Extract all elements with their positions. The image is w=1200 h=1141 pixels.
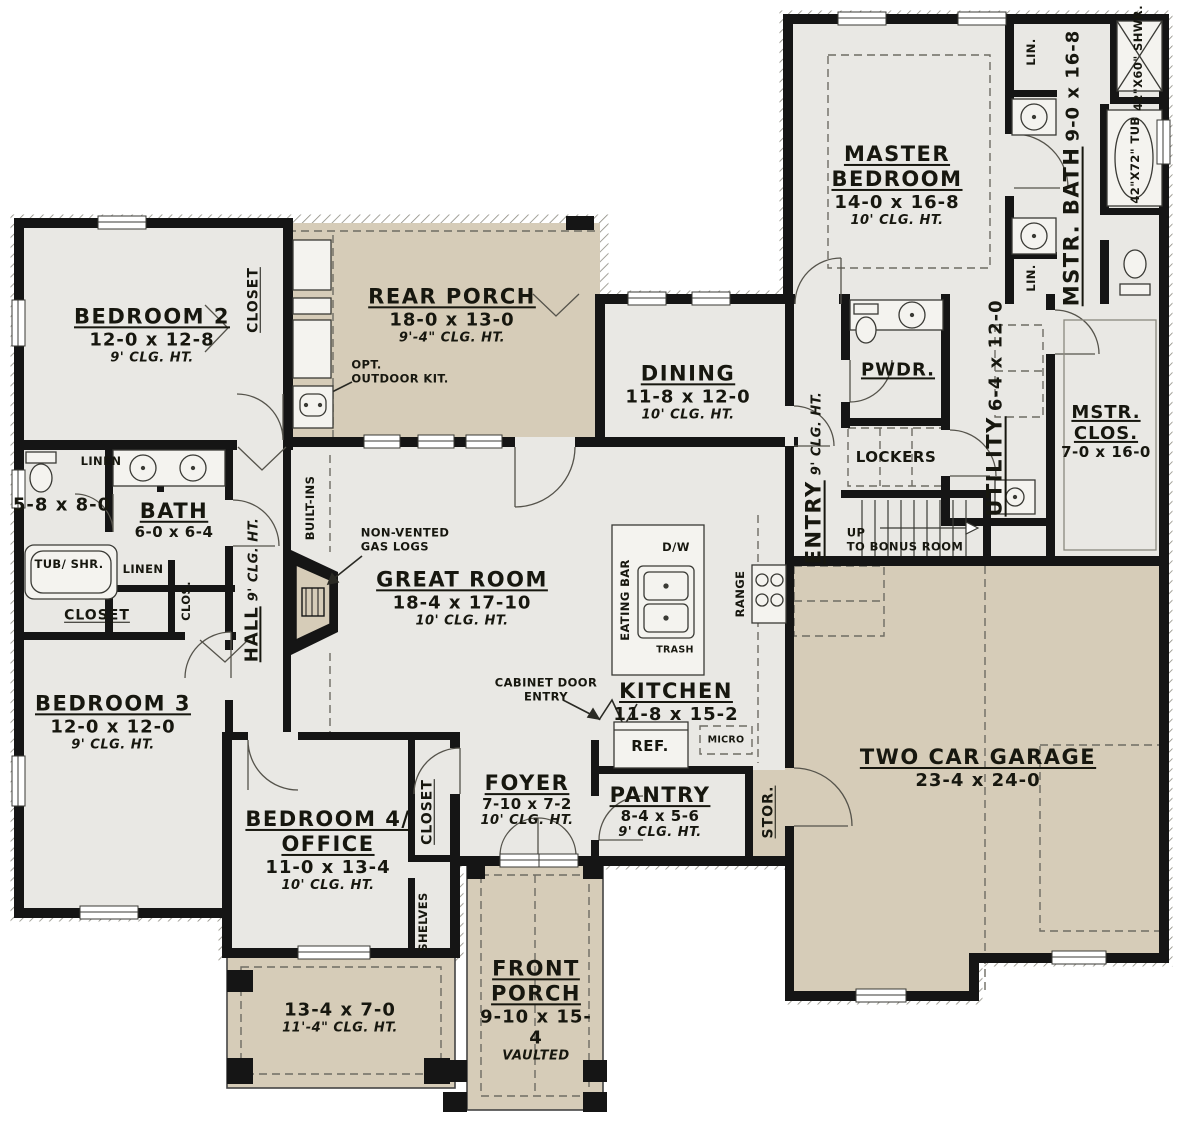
tub-size-label: 42"X72" TUB	[1129, 116, 1143, 203]
floor-plan-drawing	[0, 0, 1200, 1141]
trash-label: TRASH	[656, 644, 693, 655]
micro-label: MICRO	[708, 734, 745, 745]
room-label-front-porch: FRONT PORCH 9-10 x 15-4 VAULTED	[476, 956, 596, 1063]
room-label-pantry: PANTRY 8-4 x 5-6 9' CLG. HT.	[610, 783, 711, 841]
room-label-bedroom3: BEDROOM 3 12-0 x 12-0 9' CLG. HT.	[35, 691, 191, 752]
built-ins-label: BUILT-INS	[304, 476, 318, 541]
linen-label-top: LINEN	[81, 455, 122, 469]
room-label-kitchen: KITCHEN 11-8 x 15-2	[613, 679, 738, 725]
stairs-label: UP TO BONUS ROOM	[847, 526, 963, 553]
closet-label-bedroom3: CLOSET	[64, 608, 130, 625]
room-label-dining: DINING 11-8 x 12-0 10' CLG. HT.	[625, 361, 750, 422]
opt-outdoor-kit-label: OPT. OUTDOOR KIT.	[351, 358, 448, 385]
room-label-rear-porch: REAR PORCH 18-0 x 13-0 9'-4" CLG. HT.	[368, 284, 536, 345]
room-label-mstr-bath: MSTR. BATH 9-0 x 16-8	[1060, 30, 1085, 307]
eating-bar-label: EATING BAR	[619, 559, 633, 641]
tub-shr-label: TUB/ SHR.	[34, 558, 103, 572]
dishwasher-label: D/W	[662, 541, 690, 555]
room-label-pwdr: PWDR.	[861, 359, 935, 380]
room-label-garage: TWO CAR GARAGE 23-4 x 24-0	[860, 745, 1096, 791]
floor-plan: MASTER BEDROOM 14-0 x 16-8 10' CLG. HT. …	[0, 0, 1200, 1141]
room-label-bedroom4: BEDROOM 4/ OFFICE 11-0 x 13-4 10' CLG. H…	[233, 807, 423, 893]
shelves-label: SHELVES	[417, 892, 431, 951]
room-label-hall: HALL 9' CLG. HT.	[241, 518, 262, 663]
ref-label: REF.	[631, 738, 669, 756]
room-label-entry: ENTRY 9' CLG. HT.	[802, 392, 827, 565]
room-label-foyer: FOYER 7-10 x 7-2 10' CLG. HT.	[480, 771, 573, 829]
room-label-bedroom2: BEDROOM 2 12-0 x 12-8 9' CLG. HT.	[74, 304, 230, 365]
range-label: RANGE	[734, 571, 748, 618]
linen-label-bottom: LINEN	[123, 563, 164, 577]
room-label-great-room: GREAT ROOM 18-4 x 17-10 10' CLG. HT.	[376, 567, 548, 628]
side-porch-label: 13-4 x 7-0 11'-4" CLG. HT.	[282, 1000, 398, 1037]
bath-wc-dims-label: 5-8 x 8-0	[13, 494, 111, 515]
linen-closet-label-bottom: LIN.	[1025, 264, 1039, 291]
room-label-master-bedroom: MASTER BEDROOM 14-0 x 16-8 10' CLG. HT.	[797, 142, 997, 228]
lockers-label: LOCKERS	[856, 449, 937, 467]
cabinet-door-entry-label: CABINET DOOR ENTRY	[495, 676, 597, 703]
stor-label: STOR.	[761, 786, 778, 839]
clos-label-bedroom3: CLOS.	[180, 581, 194, 621]
closet-label-bedroom2: CLOSET	[246, 267, 263, 333]
linen-closet-label-top: LIN.	[1025, 38, 1039, 65]
shower-size-label: 42"X60" SHWR.	[1132, 5, 1146, 111]
room-label-bath: BATH 6-0 x 6-4	[135, 499, 214, 541]
non-vented-gas-logs-label: NON-VENTED GAS LOGS	[361, 526, 450, 553]
room-label-utility: UTILITY 6-4 x 12-0	[983, 299, 1008, 516]
closet-label-bedroom4: CLOSET	[420, 779, 437, 845]
room-label-mstr-clos: MSTR. CLOS. 7-0 x 16-0	[1051, 402, 1161, 462]
